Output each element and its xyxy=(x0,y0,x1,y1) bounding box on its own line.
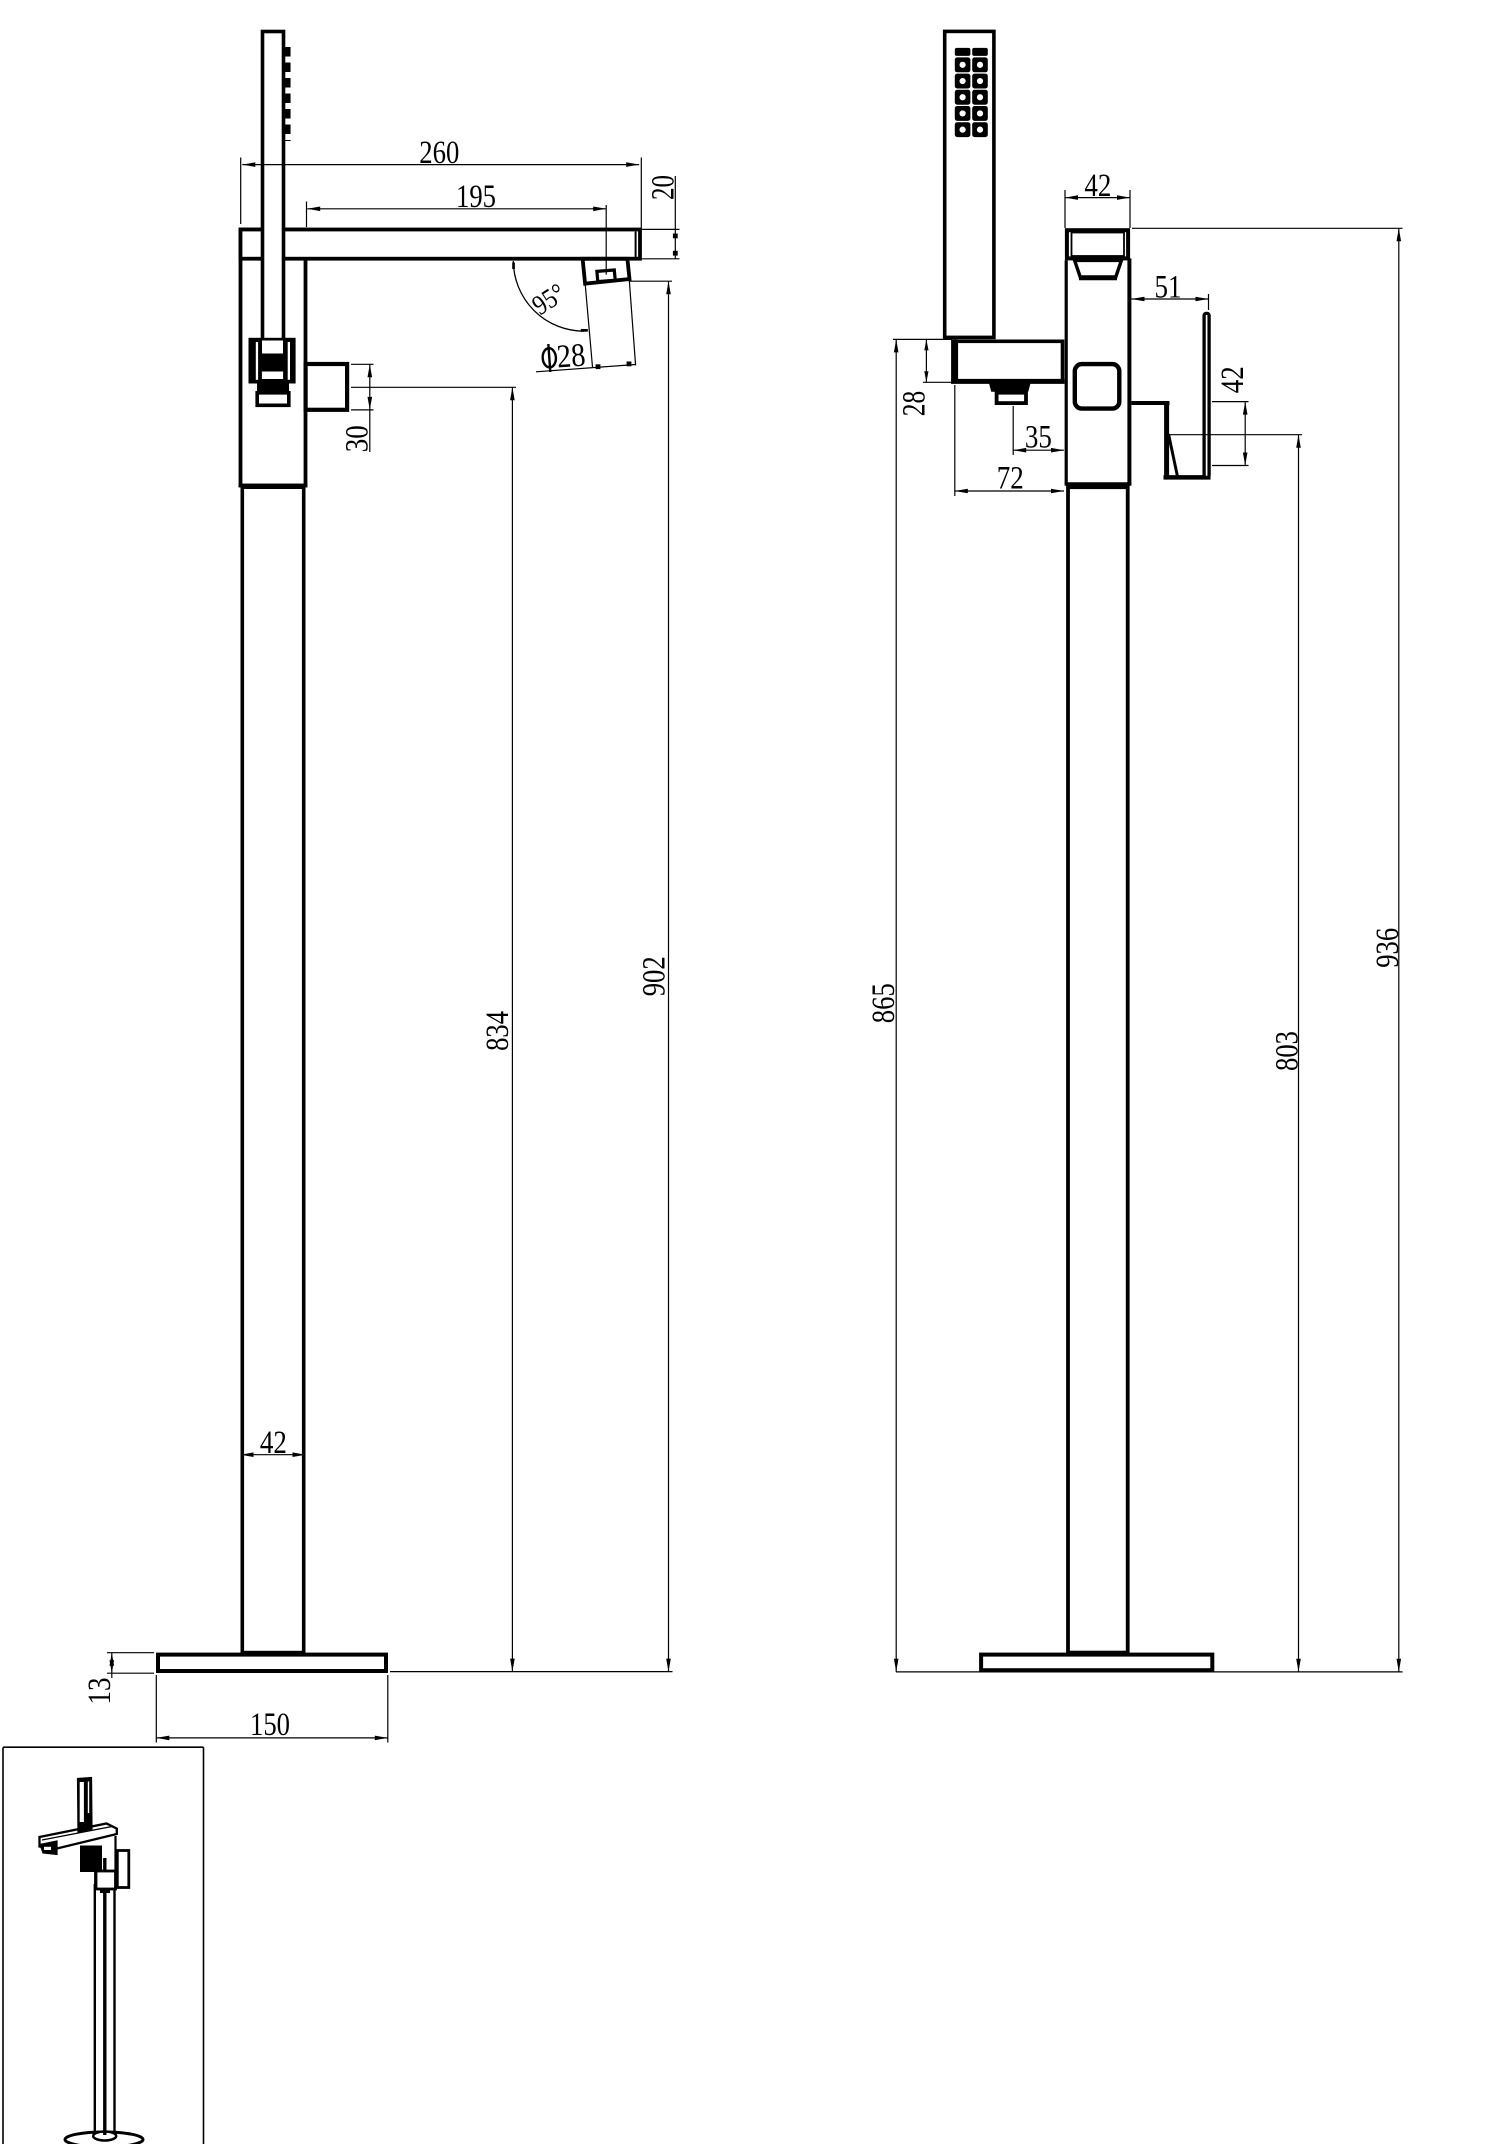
svg-text:35: 35 xyxy=(1025,420,1052,456)
svg-text:42: 42 xyxy=(1215,366,1251,393)
svg-text:30: 30 xyxy=(340,425,376,452)
svg-text:28: 28 xyxy=(897,391,933,417)
svg-text:150: 150 xyxy=(250,1707,290,1743)
svg-text:42: 42 xyxy=(1084,168,1111,204)
svg-text:13: 13 xyxy=(82,1678,118,1705)
svg-text:260: 260 xyxy=(419,135,459,171)
svg-text:51: 51 xyxy=(1155,270,1182,306)
svg-text:834: 834 xyxy=(480,1011,516,1051)
svg-text:72: 72 xyxy=(997,461,1024,497)
svg-text:902: 902 xyxy=(636,956,672,996)
svg-text:195: 195 xyxy=(456,179,496,215)
svg-text:42: 42 xyxy=(260,1425,287,1461)
svg-text:28: 28 xyxy=(556,337,587,375)
svg-text:936: 936 xyxy=(1370,928,1406,968)
svg-text:865: 865 xyxy=(866,983,902,1023)
svg-text:20: 20 xyxy=(646,175,682,200)
svg-text:803: 803 xyxy=(1269,1031,1305,1071)
